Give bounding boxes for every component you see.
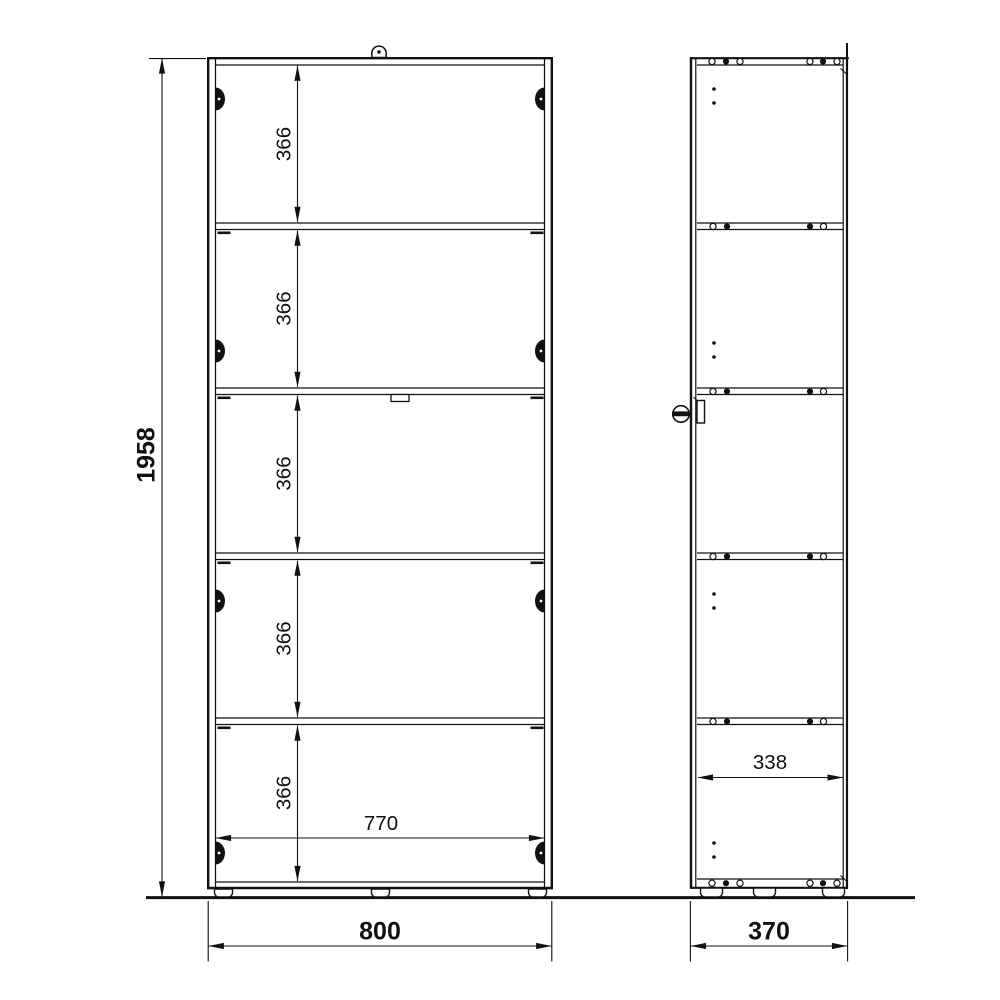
adjustable-foot [754,888,776,897]
overall-width-label: 800 [359,918,401,946]
drill-hole-open [710,553,716,559]
drill-hole-filled [724,388,730,394]
drill-hole-filled [723,58,729,64]
overall-depth-dimension: 370 [690,901,847,962]
drill-hole-open [807,880,813,886]
shelves [216,223,544,729]
drill-hole-open [834,880,840,886]
drill-hole-filled [724,223,730,229]
adjustable-foot [823,888,845,897]
drill-hole-open [710,388,716,394]
compartment-dimensions: 366 366 366 366 366 [273,66,298,881]
drill-hole-open [807,58,813,64]
overall-height-label: 1958 [133,427,161,483]
drill-hole-open [710,718,716,724]
drill-hole-filled [807,718,813,724]
adjustable-foot [528,889,546,897]
drill-hole-open [820,388,826,394]
cabinet-dimension-drawing: 1958 366 366 366 366 366 770 800 [0,0,1000,1000]
shelf-pin-mark [531,232,544,235]
adjustable-foot [372,889,390,897]
lock-plate [391,395,409,402]
drill-hole-filled [807,223,813,229]
shelf-pin-mark [218,562,231,565]
screw-dot [712,606,716,610]
overall-height-dimension: 1958 [133,59,207,897]
shelf-pin-mark [218,232,231,235]
drill-hole-filled [724,718,730,724]
hinge-pin [540,350,543,353]
drill-hole-open [710,223,716,229]
shelf-pin-mark [531,562,544,565]
drill-hole-filled [724,553,730,559]
hinge-pin [218,350,221,353]
drill-hole-filled [723,880,729,886]
screw-dot [712,101,716,105]
interior-depth-dimension: 338 [698,751,843,778]
hinge-screw-dots [712,87,716,859]
drill-hole-open [737,880,743,886]
side-shelf-lines [697,223,843,725]
interior-width-label: 770 [364,812,398,835]
overall-width-dimension: 800 [208,901,552,962]
shelf-pin-mark [218,727,231,730]
drill-hole-open [820,718,826,724]
drill-hole-open [820,553,826,559]
hinge-pin [218,852,221,855]
front-feet [215,889,547,897]
technical-drawing-canvas: 1958 366 366 366 366 366 770 800 [0,0,1000,1000]
adjustable-foot [215,889,233,897]
shelf-pin-mark [218,397,231,400]
hinge-pin [540,98,543,101]
drill-hole-open [709,58,715,64]
compartment-height-label: 366 [273,291,296,325]
drill-hole-filled [807,553,813,559]
compartment-height-label: 366 [273,127,296,161]
screw-dot [712,355,716,359]
door-hinges [216,88,545,865]
drill-hole-filled [820,880,826,886]
drill-hole-open [737,58,743,64]
shelf-pin-mark [531,727,544,730]
lock-body [697,401,705,424]
screw-dot [712,87,716,91]
wall-hanger [372,46,386,57]
interior-depth-label: 338 [753,751,787,774]
hinge-pin [218,98,221,101]
drill-hole-open [709,880,715,886]
side-feet [701,888,845,897]
screw-dot [712,592,716,596]
cabinet-outline [207,57,553,889]
hinge-pin [218,600,221,603]
screw-dot [712,341,716,345]
adjustable-foot [701,888,723,897]
drill-hole-filled [807,388,813,394]
drill-hole-filled [820,58,826,64]
shelf-pin-mark [531,397,544,400]
compartment-height-label: 366 [273,456,296,490]
screw-dot [712,855,716,859]
hinge-pin [540,600,543,603]
interior-width-dimension: 770 [216,812,544,838]
front-view [207,46,553,897]
screw-dot [712,841,716,845]
lock-knob-slot [673,411,690,416]
drill-hole-open [820,223,826,229]
dimensions: 1958 366 366 366 366 366 770 800 [133,59,848,962]
door-lock [673,397,705,423]
hanger-hole [377,50,380,53]
compartment-height-label: 366 [273,776,296,810]
hinge-pin [540,852,543,855]
drill-hole-open [834,58,840,64]
compartment-height-label: 366 [273,621,296,655]
overall-depth-label: 370 [748,918,790,946]
